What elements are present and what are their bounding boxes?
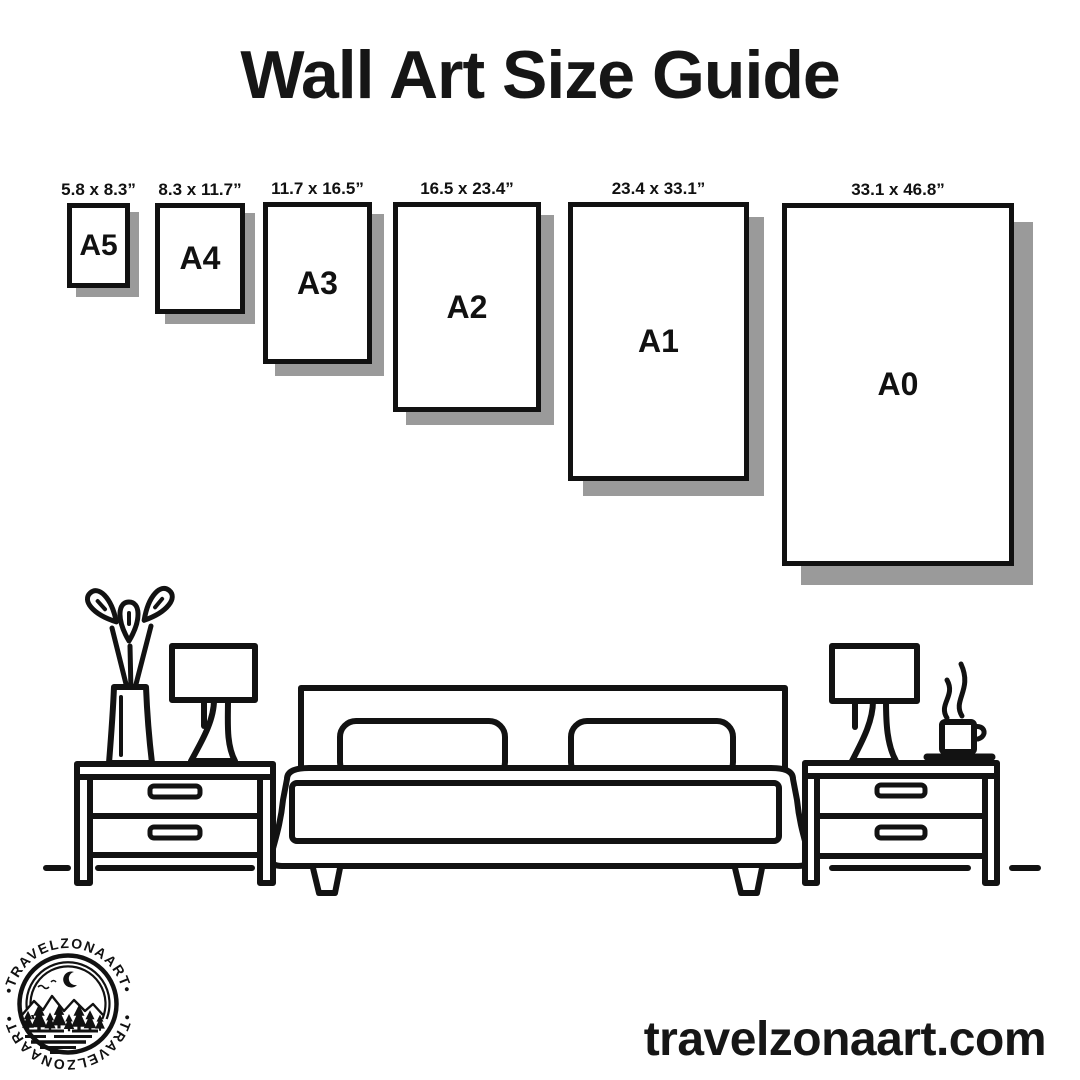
- bed-leg-right: [735, 868, 762, 893]
- lamp-base: [191, 700, 235, 761]
- bedroom-illustration: [0, 0, 1080, 1080]
- bed-leg-left: [313, 868, 340, 893]
- drawer-handle: [150, 827, 200, 838]
- table-leg: [805, 776, 817, 883]
- table-lamp-left: [172, 646, 255, 761]
- table-leg: [77, 777, 90, 883]
- table-top: [805, 763, 997, 776]
- drawer-handle: [877, 827, 925, 838]
- table-top: [77, 764, 273, 777]
- table-leg: [260, 777, 273, 883]
- plant-vase: [84, 585, 177, 763]
- leaf: [137, 585, 176, 626]
- table-leg: [985, 776, 997, 883]
- brand-logo: •TRAVELZONAART• •TRAVELZONAART•: [0, 931, 138, 1077]
- lamp-shade: [172, 646, 255, 700]
- vase: [109, 687, 152, 763]
- coffee-cup: [927, 664, 992, 757]
- leaf: [84, 587, 123, 628]
- website-url: travelzonaart.com: [644, 1012, 1046, 1067]
- lamp-base: [852, 701, 896, 761]
- table-lamp-right: [832, 646, 917, 761]
- double-bed: [271, 688, 809, 893]
- steam: [944, 680, 949, 718]
- drawer-handle: [150, 786, 200, 797]
- steam: [959, 664, 965, 716]
- cup-body: [942, 722, 974, 752]
- leaf: [120, 602, 138, 641]
- lamp-shade: [832, 646, 917, 701]
- drawer-handle: [877, 785, 925, 796]
